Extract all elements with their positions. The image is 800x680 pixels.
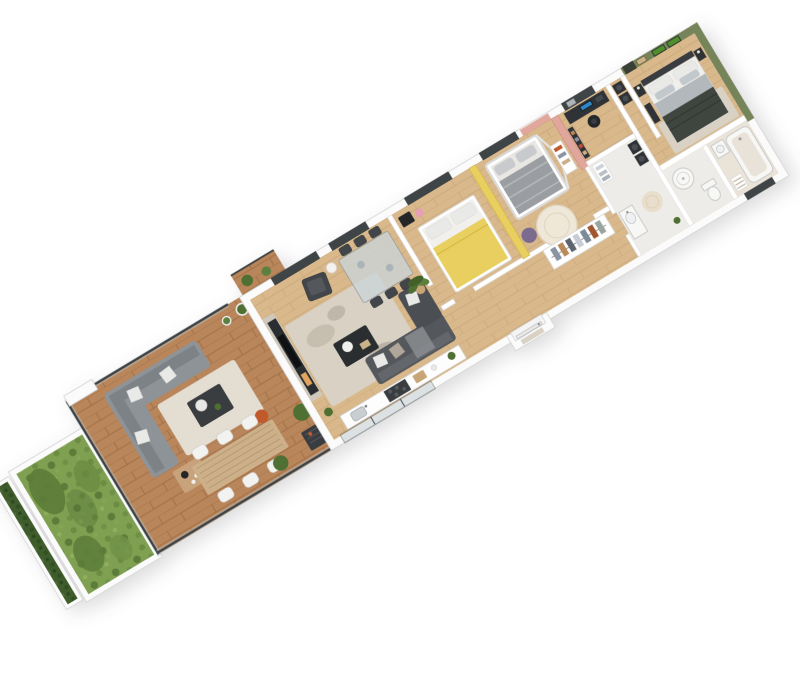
floorplan-svg xyxy=(0,0,800,680)
apartment-scene xyxy=(0,3,794,618)
floorplan-render-canvas: { "scene": { "description": "3D isometri… xyxy=(0,0,800,680)
